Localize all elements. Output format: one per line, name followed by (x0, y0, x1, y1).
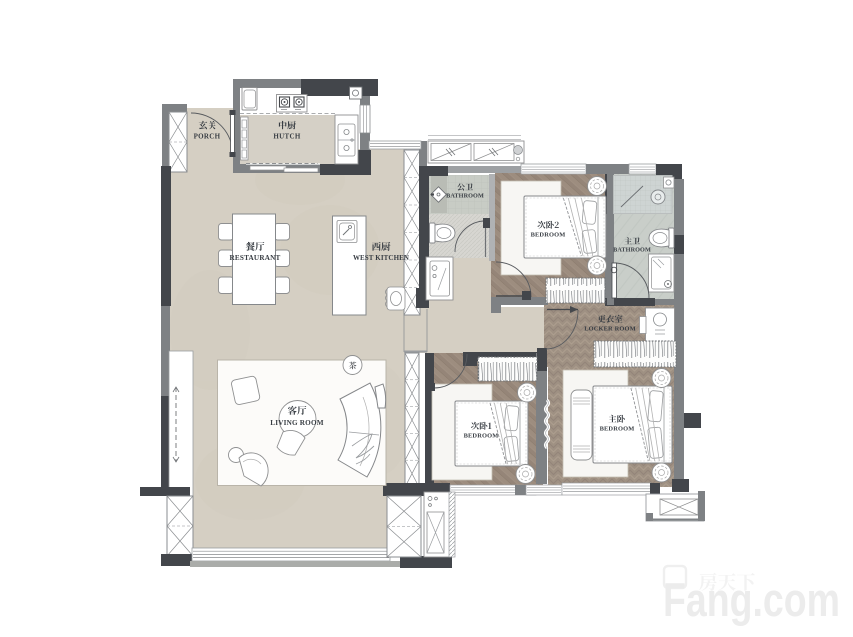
svg-text:BATHROOM: BATHROOM (613, 247, 651, 254)
svg-text:BEDROOM: BEDROOM (531, 232, 566, 239)
svg-text:BEDROOM: BEDROOM (464, 433, 499, 440)
svg-text:BEDROOM: BEDROOM (600, 426, 635, 433)
svg-text:PORCH: PORCH (194, 133, 221, 141)
svg-text:BATHROOM: BATHROOM (446, 193, 484, 200)
svg-text:LOCKER ROOM: LOCKER ROOM (584, 326, 636, 333)
svg-text:RESTAURANT: RESTAURANT (230, 254, 281, 262)
svg-text:LIVING ROOM: LIVING ROOM (270, 419, 324, 427)
svg-text:HUTCH: HUTCH (273, 133, 300, 141)
svg-text:Fang.com: Fang.com (663, 573, 840, 626)
svg-text:WEST KITCHEN: WEST KITCHEN (353, 254, 409, 262)
